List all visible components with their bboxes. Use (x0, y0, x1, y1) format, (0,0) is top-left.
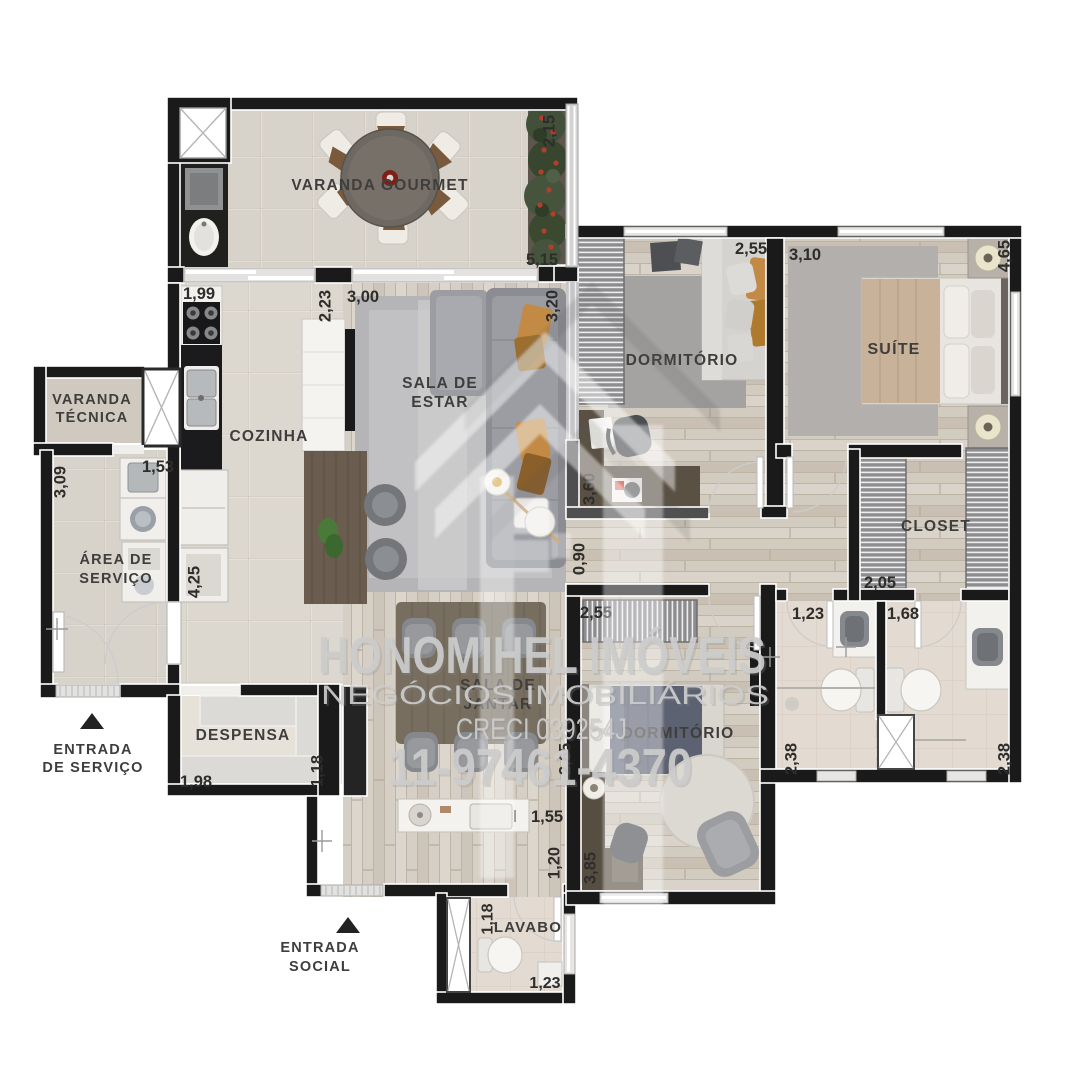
svg-text:5,15: 5,15 (526, 251, 558, 269)
svg-text:VARANDA GOURMET: VARANDA GOURMET (291, 177, 468, 194)
svg-text:2,15: 2,15 (541, 115, 559, 147)
svg-text:SUÍTE: SUÍTE (867, 339, 920, 358)
svg-text:CLOSET: CLOSET (901, 518, 971, 535)
svg-text:1,68: 1,68 (887, 605, 919, 623)
svg-text:HONOMIHEL IMÓVEIS: HONOMIHEL IMÓVEIS (318, 627, 766, 685)
svg-text:ENTRADA: ENTRADA (280, 940, 359, 956)
svg-text:1,18: 1,18 (480, 903, 497, 934)
svg-text:3,09: 3,09 (52, 466, 70, 498)
svg-text:2,38: 2,38 (783, 743, 801, 775)
svg-text:SERVIÇO: SERVIÇO (79, 571, 152, 587)
svg-text:1,99: 1,99 (183, 285, 215, 303)
svg-text:2,05: 2,05 (864, 574, 896, 592)
svg-text:1,23: 1,23 (529, 975, 560, 992)
svg-text:COZINHA: COZINHA (229, 428, 308, 445)
svg-text:DESPENSA: DESPENSA (196, 727, 291, 744)
svg-text:1,53: 1,53 (142, 458, 174, 476)
svg-text:1,98: 1,98 (180, 773, 212, 791)
svg-text:TÉCNICA: TÉCNICA (56, 409, 129, 426)
svg-text:2,23: 2,23 (317, 290, 335, 322)
svg-text:2,55: 2,55 (735, 240, 767, 258)
svg-text:3,00: 3,00 (347, 288, 379, 306)
svg-text:SALA DE: SALA DE (402, 375, 478, 392)
svg-text:3,85: 3,85 (582, 852, 600, 884)
svg-text:ESTAR: ESTAR (411, 394, 468, 411)
svg-text:1,23: 1,23 (792, 605, 824, 623)
svg-text:1,18: 1,18 (309, 755, 327, 787)
svg-text:3,10: 3,10 (789, 246, 821, 264)
svg-text:NEGÓCIOS IMOBILIÁRIOS: NEGÓCIOS IMOBILIÁRIOS (321, 679, 769, 710)
svg-text:2,38: 2,38 (996, 743, 1014, 775)
svg-text:0,90: 0,90 (571, 543, 589, 575)
svg-text:ÁREA DE: ÁREA DE (79, 551, 152, 568)
svg-text:ENTRADA: ENTRADA (53, 742, 132, 758)
svg-text:4,25: 4,25 (186, 566, 204, 598)
svg-text:1,55: 1,55 (531, 808, 563, 826)
svg-text:11-97461-4370: 11-97461-4370 (388, 739, 692, 797)
svg-text:1,20: 1,20 (546, 847, 564, 879)
svg-text:DE SERVIÇO: DE SERVIÇO (42, 760, 143, 776)
svg-text:4,65: 4,65 (996, 240, 1014, 272)
svg-text:SOCIAL: SOCIAL (289, 959, 351, 975)
svg-text:LAVABO: LAVABO (494, 919, 562, 936)
svg-text:VARANDA: VARANDA (52, 392, 132, 408)
